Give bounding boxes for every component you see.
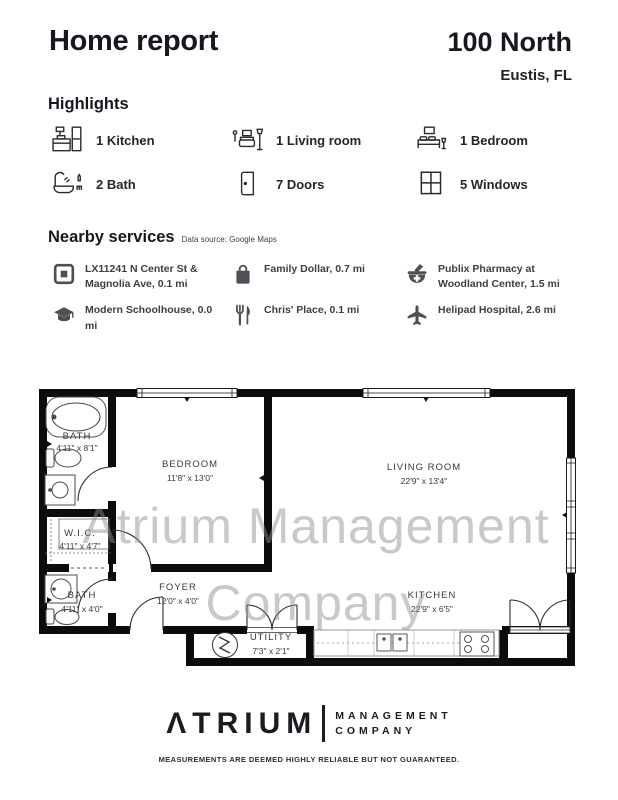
transit-station-icon — [53, 263, 75, 285]
highlight-label: 1 Bedroom — [460, 133, 528, 148]
highlight-label: 1 Kitchen — [96, 133, 155, 148]
room-label-bedroom: BEDROOM — [162, 459, 218, 470]
highlight-label: 5 Windows — [460, 177, 528, 192]
room-dims-bath-1: 4'11" x 8'1" — [56, 443, 97, 453]
living-room-icon — [232, 126, 264, 154]
watermark-line-2: Company — [206, 575, 427, 631]
room-dims-foyer: 12'0" x 4'0" — [157, 596, 199, 606]
water-heater — [213, 633, 238, 658]
property-location: Eustis, FL — [500, 67, 572, 84]
logo-word-company: COMPANY — [335, 724, 451, 739]
highlight-doors: 7 Doors — [232, 170, 416, 198]
room-label-living-room: LIVING ROOM — [387, 462, 461, 473]
service-label: Helipad Hospital, 2.6 mi — [438, 303, 556, 318]
restaurant-icon — [232, 304, 254, 326]
logo-subtext: MANAGEMENT COMPANY — [335, 709, 451, 738]
room-dims-bath-2: 4'11" x 4'0" — [61, 604, 102, 614]
service-restaurant: Chris' Place, 0.1 mi — [232, 303, 406, 333]
bedroom-icon — [416, 126, 448, 154]
logo-wordmark-rest: TRIUM — [192, 707, 317, 740]
service-school: Modern Schoolhouse, 0.0 mi — [53, 303, 232, 333]
room-dims-utility: 7'3" x 2'1" — [252, 646, 289, 656]
room-dims-bedroom: 11'8" x 13'0" — [167, 473, 213, 483]
service-label: Modern Schoolhouse, 0.0 mi — [85, 303, 227, 333]
logo-divider — [322, 705, 325, 742]
pharmacy-icon — [406, 263, 428, 285]
room-label-utility: UTILITY — [250, 632, 292, 643]
doors-icon — [232, 170, 264, 198]
service-airport: Helipad Hospital, 2.6 mi — [406, 303, 582, 333]
room-label-bath-1: BATH — [63, 431, 92, 442]
watermark-line-1: Atrium Management — [82, 498, 549, 554]
logo-word-management: MANAGEMENT — [335, 709, 451, 724]
floor-plan: BATH 4'11" x 8'1" BEDROOM 11'8" x 13'0" … — [33, 383, 587, 673]
bath-icon — [52, 170, 84, 198]
highlights-heading: Highlights — [48, 95, 129, 114]
service-pharmacy: Publix Pharmacy at Woodland Center, 1.5 … — [406, 262, 582, 292]
stove — [460, 632, 494, 656]
service-label: Chris' Place, 0.1 mi — [264, 303, 359, 318]
disclaimer-text: MEASUREMENTS ARE DEEMED HIGHLY RELIABLE … — [159, 755, 460, 764]
highlight-bath: 2 Bath — [52, 170, 232, 198]
windows-icon — [416, 170, 448, 198]
footer: ΛTRIUM MANAGEMENT COMPANY MEASUREMENTS A… — [0, 705, 618, 764]
highlight-label: 7 Doors — [276, 177, 324, 192]
company-logo: ΛTRIUM MANAGEMENT COMPANY — [166, 705, 451, 742]
property-name: 100 North — [447, 27, 572, 58]
nearby-grid: LX11241 N Center St & Magnolia Ave, 0.1 … — [53, 262, 598, 334]
room-dims-living-room: 22'9" x 13'4" — [401, 476, 448, 486]
school-icon — [53, 304, 75, 326]
logo-stylized-a: Λ — [166, 707, 192, 740]
service-label: LX11241 N Center St & Magnolia Ave, 0.1 … — [85, 262, 227, 292]
nearby-heading-row: Nearby services Data source: Google Maps — [48, 228, 277, 247]
service-transit: LX11241 N Center St & Magnolia Ave, 0.1 … — [53, 262, 232, 292]
home-report-page: Home report 100 North Eustis, FL Highlig… — [0, 0, 618, 800]
highlight-kitchen: 1 Kitchen — [52, 126, 232, 154]
airport-icon — [406, 304, 428, 326]
highlight-bedroom: 1 Bedroom — [416, 126, 576, 154]
kitchen-icon — [52, 126, 84, 154]
bathroom-sink — [45, 475, 75, 505]
service-label: Family Dollar, 0.7 mi — [264, 262, 365, 277]
nearby-heading: Nearby services — [48, 228, 175, 247]
highlight-windows: 5 Windows — [416, 170, 576, 198]
room-label-foyer: FOYER — [159, 582, 197, 593]
logo-wordmark: ΛTRIUM — [166, 707, 317, 741]
data-source-note: Data source: Google Maps — [182, 235, 277, 244]
highlight-label: 1 Living room — [276, 133, 361, 148]
highlight-living-room: 1 Living room — [232, 126, 416, 154]
room-label-bath-2: BATH — [68, 590, 97, 601]
highlight-label: 2 Bath — [96, 177, 136, 192]
service-label: Publix Pharmacy at Woodland Center, 1.5 … — [438, 262, 580, 292]
service-shopping: Family Dollar, 0.7 mi — [232, 262, 406, 292]
highlights-grid: 1 Kitchen 1 Living room — [52, 126, 592, 198]
shopping-bag-icon — [232, 263, 254, 285]
page-title: Home report — [49, 25, 218, 58]
